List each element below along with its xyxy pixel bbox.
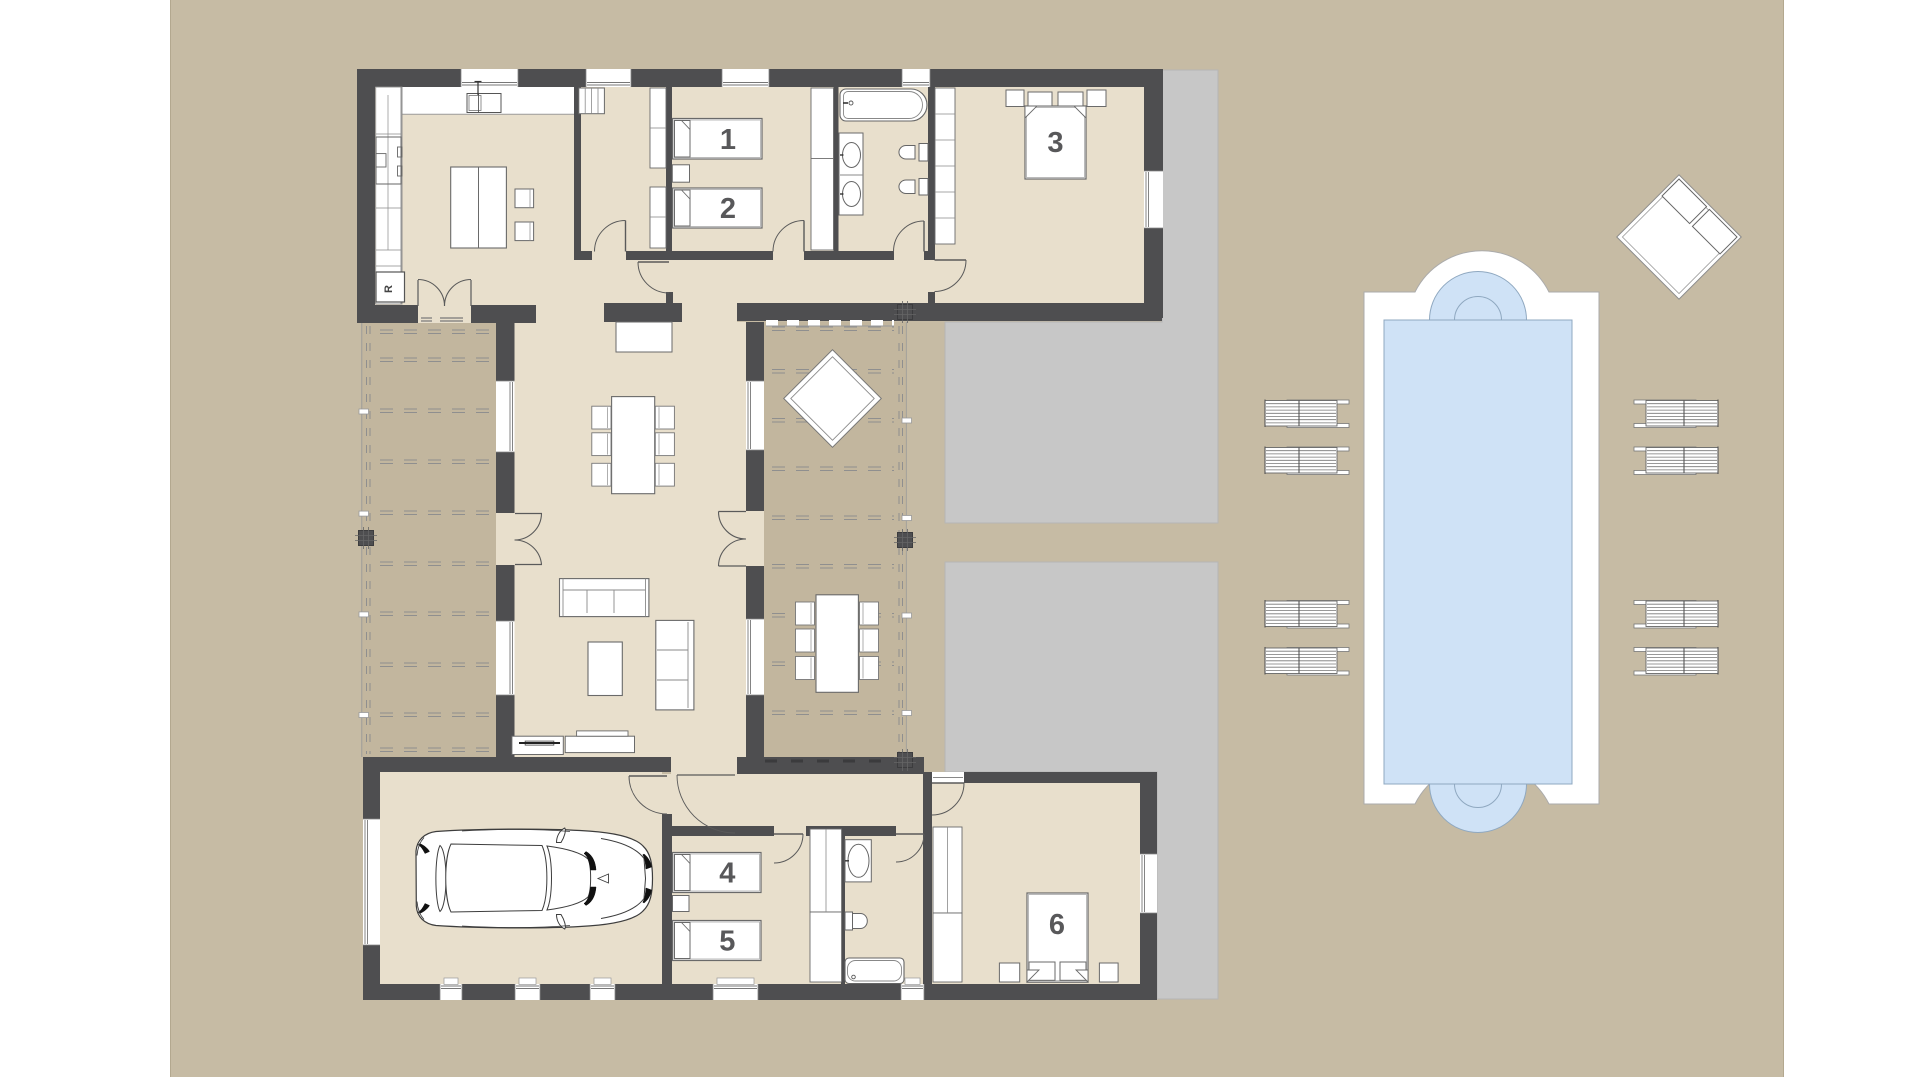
svg-text:4: 4 bbox=[719, 858, 735, 890]
svg-text:2: 2 bbox=[720, 193, 736, 225]
svg-text:1: 1 bbox=[720, 124, 736, 156]
svg-text:5: 5 bbox=[719, 926, 735, 958]
svg-text:6: 6 bbox=[1049, 909, 1065, 941]
svg-text:R: R bbox=[383, 285, 395, 293]
svg-text:3: 3 bbox=[1047, 127, 1063, 159]
